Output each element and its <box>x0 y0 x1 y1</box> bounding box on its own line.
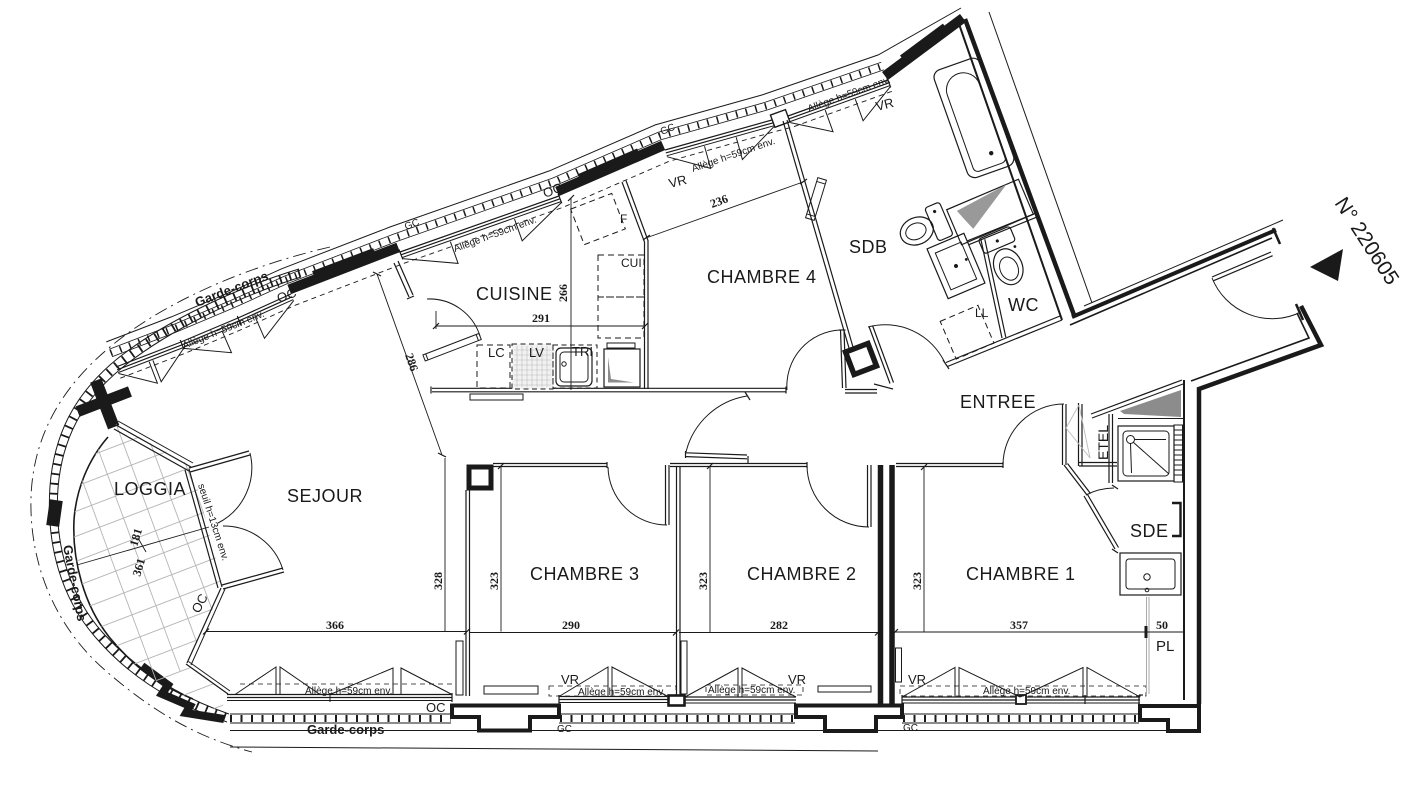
svg-text:F: F <box>620 212 627 226</box>
svg-text:VR: VR <box>561 672 579 687</box>
svg-text:VR: VR <box>788 672 806 687</box>
svg-text:SDE: SDE <box>1130 521 1169 541</box>
svg-text:328: 328 <box>431 572 445 590</box>
svg-text:TRI: TRI <box>572 344 593 359</box>
svg-text:GC: GC <box>557 724 572 735</box>
svg-text:ETEL: ETEL <box>1095 425 1111 460</box>
svg-text:Allège h=59cm env.: Allège h=59cm env. <box>305 686 392 697</box>
svg-text:Allège h=59cm env.: Allège h=59cm env. <box>983 686 1070 697</box>
svg-text:CUI: CUI <box>621 256 642 270</box>
svg-text:OC: OC <box>426 700 446 715</box>
svg-text:Allège h=59cm env.: Allège h=59cm env. <box>708 685 795 696</box>
svg-text:WC: WC <box>1008 295 1039 315</box>
svg-text:ENTREE: ENTREE <box>960 392 1036 412</box>
svg-text:VR: VR <box>908 672 926 687</box>
svg-text:GC: GC <box>903 723 918 734</box>
svg-text:SEJOUR: SEJOUR <box>287 486 363 506</box>
svg-text:LV: LV <box>529 345 544 360</box>
svg-text:290: 290 <box>562 618 580 632</box>
svg-text:LOGGIA: LOGGIA <box>114 479 186 499</box>
svg-text:323: 323 <box>910 572 924 590</box>
svg-text:357: 357 <box>1010 618 1028 632</box>
svg-text:LC: LC <box>488 345 505 360</box>
svg-text:366: 366 <box>326 618 344 632</box>
svg-text:CHAMBRE 1: CHAMBRE 1 <box>966 564 1076 584</box>
svg-text:PL: PL <box>1156 638 1174 655</box>
svg-text:CHAMBRE 3: CHAMBRE 3 <box>530 564 640 584</box>
svg-text:323: 323 <box>487 572 501 590</box>
svg-text:LL: LL <box>975 306 989 320</box>
svg-text:291: 291 <box>532 311 550 325</box>
svg-text:SDB: SDB <box>849 237 888 257</box>
svg-text:266: 266 <box>556 284 570 302</box>
svg-text:282: 282 <box>770 618 788 632</box>
svg-text:CHAMBRE 4: CHAMBRE 4 <box>707 267 817 287</box>
svg-text:323: 323 <box>696 572 710 590</box>
svg-text:CHAMBRE 2: CHAMBRE 2 <box>747 564 857 584</box>
svg-text:Allège h=59cm env.: Allège h=59cm env. <box>578 687 665 698</box>
svg-text:50: 50 <box>1156 618 1168 632</box>
svg-text:CUISINE: CUISINE <box>476 284 553 304</box>
svg-text:Garde-corps: Garde-corps <box>307 722 384 737</box>
